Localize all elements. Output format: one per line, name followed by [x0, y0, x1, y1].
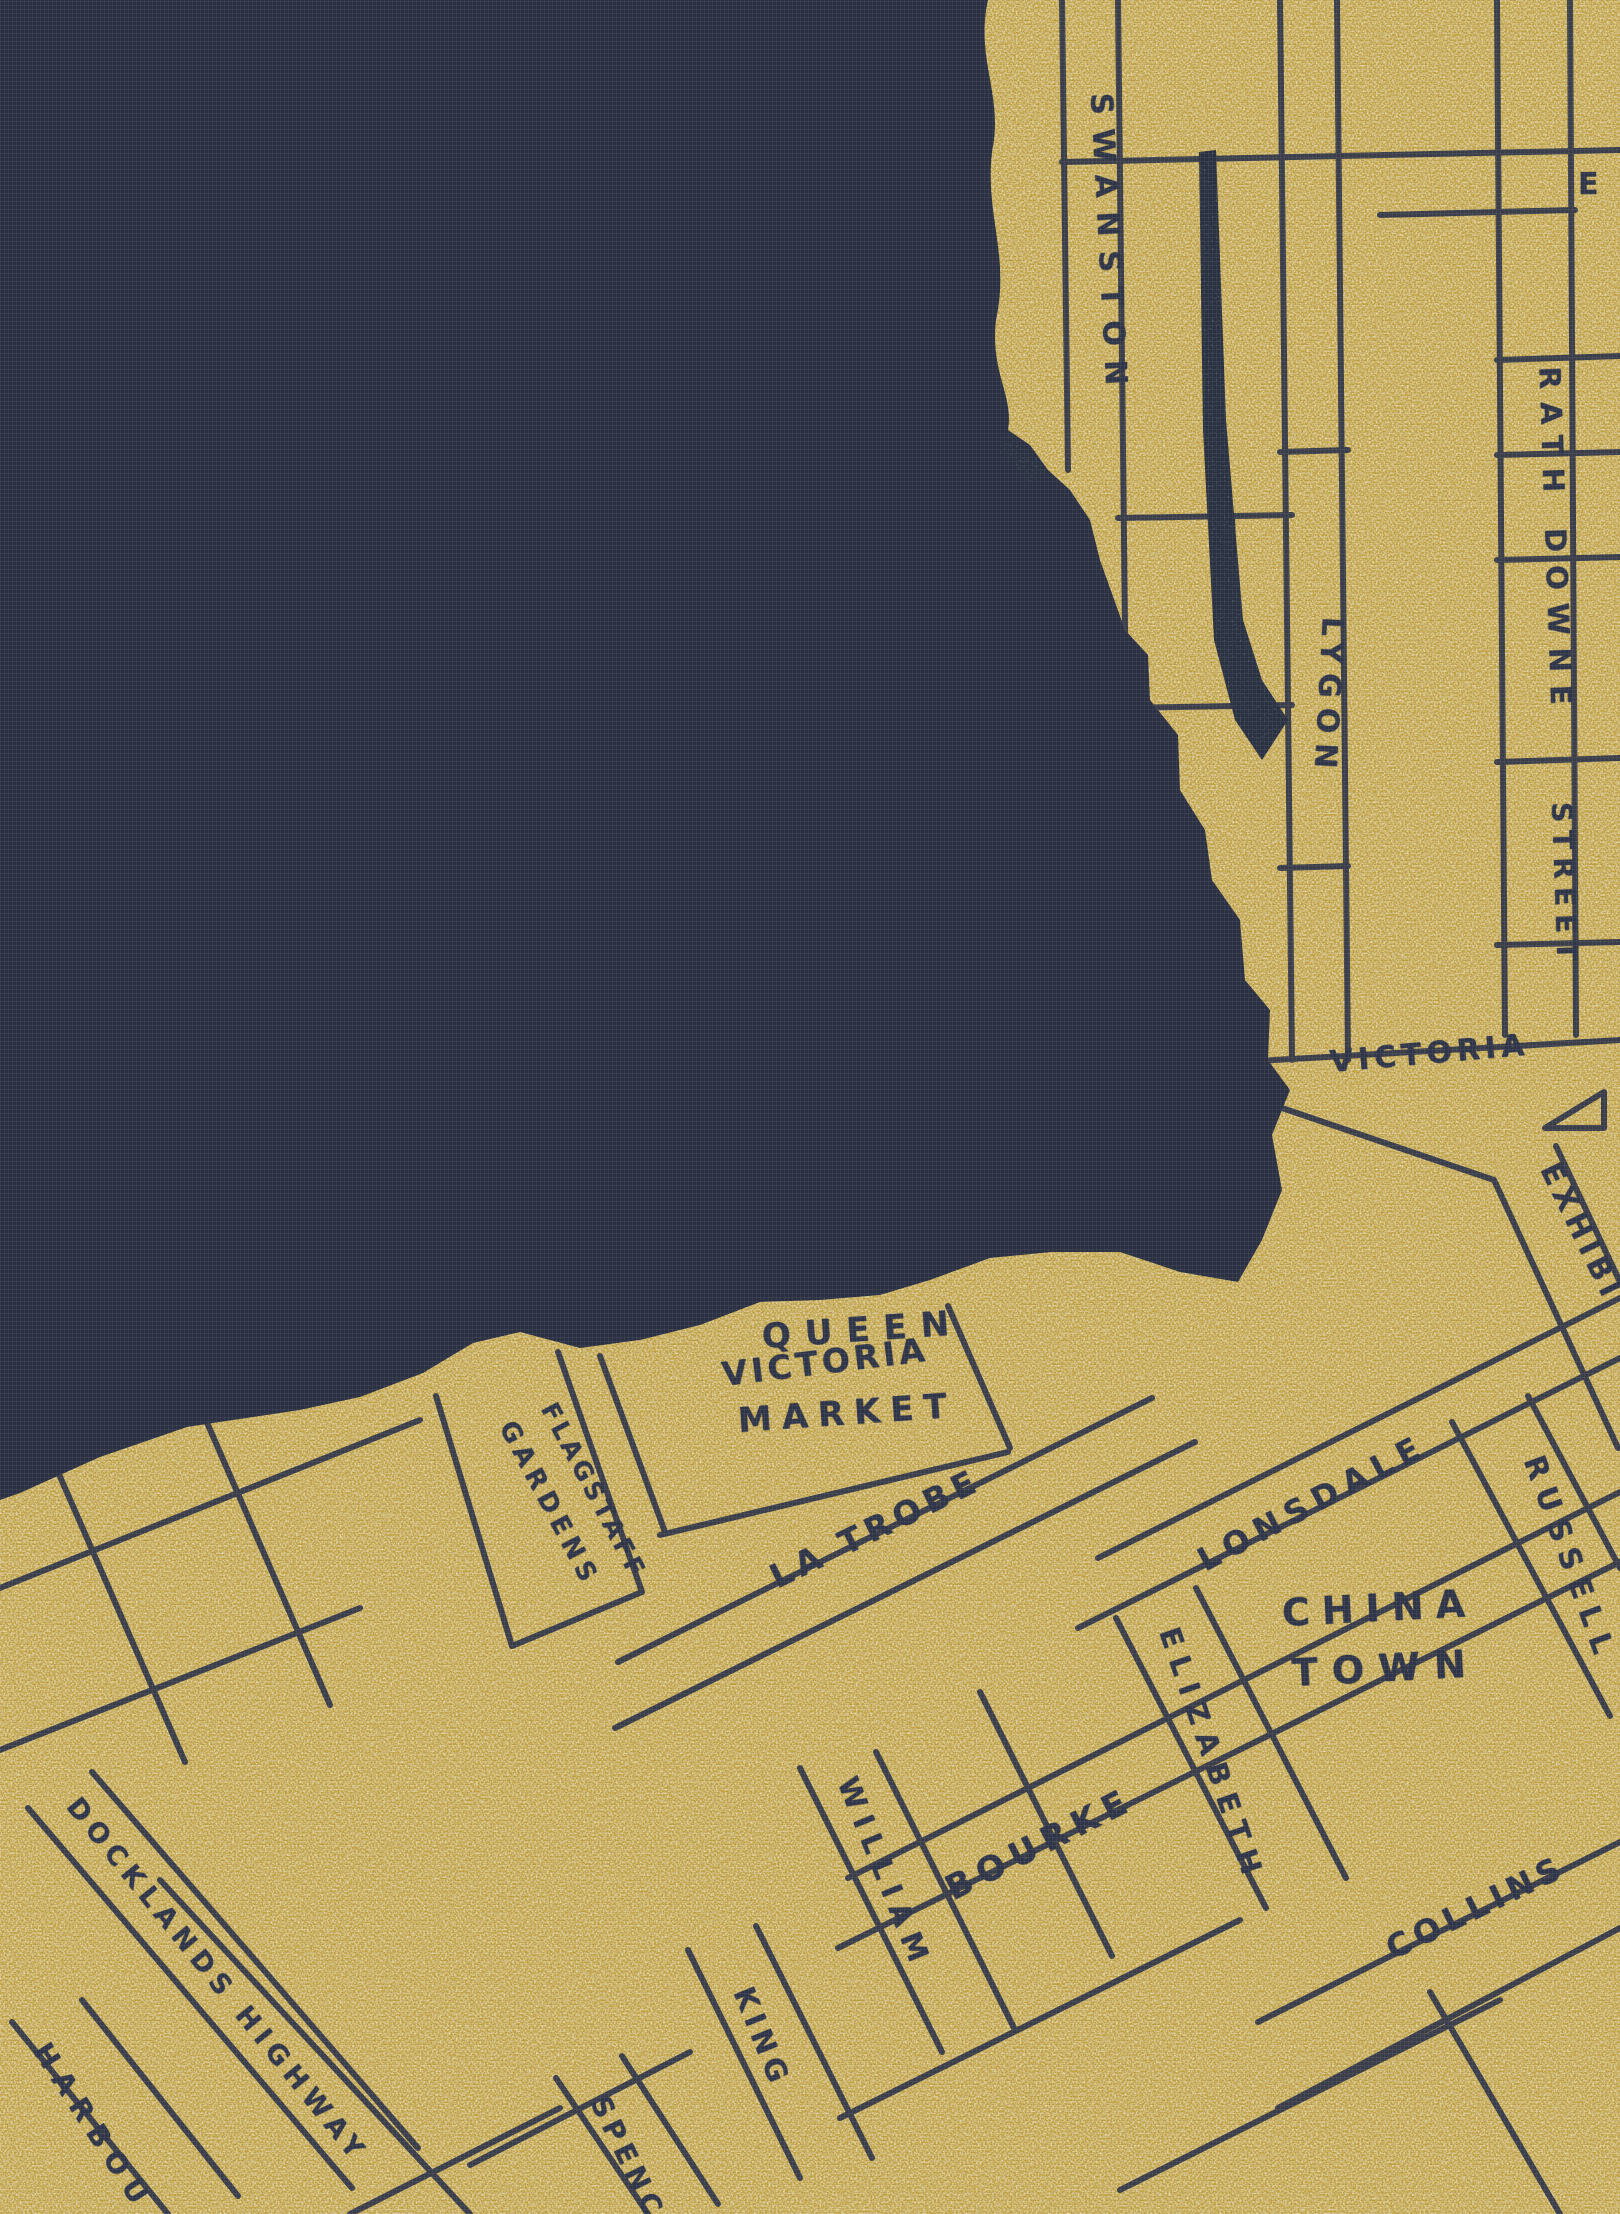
- street-label-rathdowne: RATH DOWNE: [1535, 366, 1576, 718]
- street-label-lonsdale: LONSDALE: [1192, 1429, 1431, 1576]
- street-label-russell: RUSSELL: [1518, 1452, 1620, 1667]
- area-label-queen-victoria-market-3: MARKET: [737, 1389, 958, 1438]
- street-label-elizabeth: ELIZABETH: [1154, 1624, 1269, 1887]
- street-label-spencer: SPENC: [585, 2092, 669, 2214]
- street-label-rathdowne-street: STREET: [1547, 802, 1581, 969]
- street-label-truncated-e: E: [1578, 170, 1601, 200]
- painted-map-artwork: SWANSTONERATH DOWNESTREETLYGONVICTORIAEX…: [0, 0, 1620, 2214]
- street-label-la-trobe: LA TROBE: [765, 1463, 986, 1593]
- area-label-china-town-2: TOWN: [1291, 1644, 1481, 1692]
- street-label-harbour: HARBOU: [28, 2038, 157, 2214]
- street-label-william: WILLIAM: [833, 1773, 937, 1974]
- street-labels-layer: SWANSTONERATH DOWNESTREETLYGONVICTORIAEX…: [0, 0, 1620, 2214]
- street-label-king: KING: [729, 1983, 795, 2092]
- street-label-victoria: VICTORIA: [1329, 1031, 1531, 1078]
- street-label-exhibition: EXHIBI: [1535, 1158, 1620, 1306]
- street-label-bourke: BOURKE: [940, 1782, 1139, 1906]
- area-label-queen-victoria-market-2: VICTORIA: [720, 1333, 930, 1391]
- street-label-docklands-highway: DOCKLANDS HIGHWAY: [62, 1793, 373, 2168]
- street-label-collins: COLLINS: [1381, 1850, 1570, 1964]
- street-label-lygon: LYGON: [1309, 616, 1347, 779]
- street-label-swanston: SWANSTON: [1085, 92, 1131, 400]
- area-label-china-town-1: CHINA: [1281, 1584, 1478, 1632]
